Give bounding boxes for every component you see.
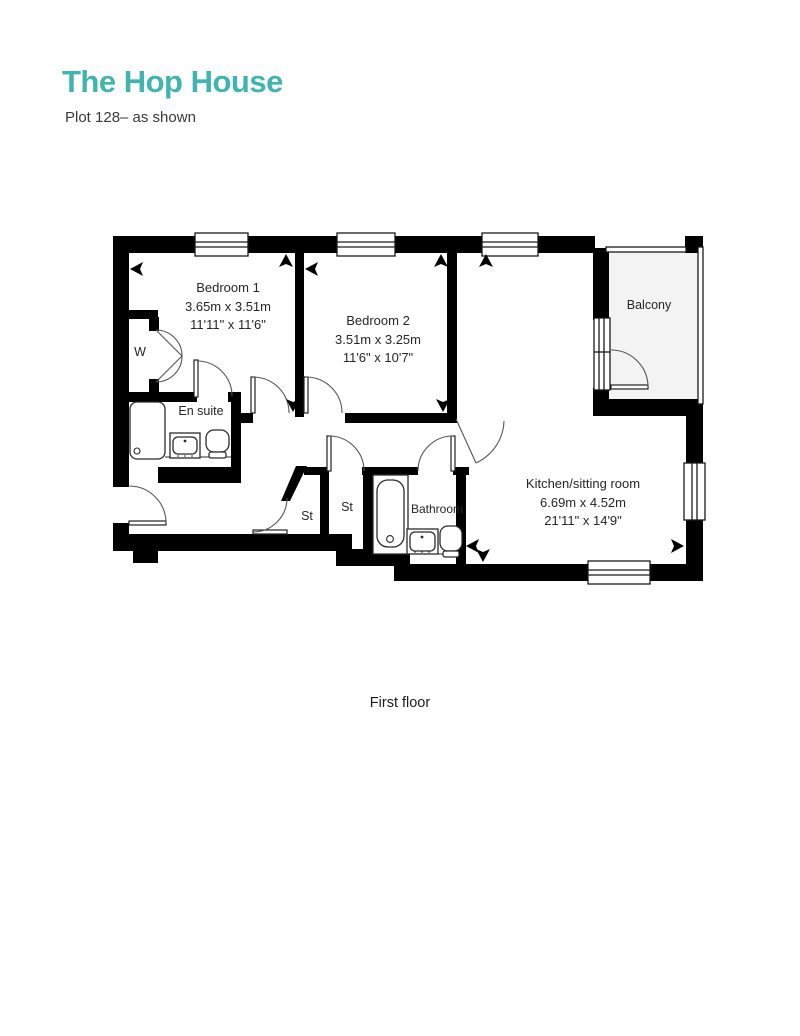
bathroom-door-leaf	[451, 436, 455, 471]
wardrobe-label: W	[128, 345, 152, 360]
kitchen-door-arc	[476, 421, 504, 463]
balcony-floor	[607, 251, 700, 401]
kitchen-door-leaf-line	[456, 419, 476, 463]
bathroom-sink-icon	[407, 529, 438, 554]
store1-door-arc	[253, 498, 287, 532]
arrow-bedroom1-left	[130, 262, 143, 276]
window-kitchen-top	[482, 233, 538, 256]
arrow-bedroom2-top	[434, 254, 448, 267]
kitchen-metric: 6.69m x 4.52m	[493, 494, 673, 513]
arrow-kitchen-right	[671, 539, 684, 553]
bedroom1-door-leaf	[251, 377, 255, 413]
store2-door-leaf	[327, 436, 331, 471]
balcony-door-leaf	[611, 385, 648, 389]
kitchen-label: Kitchen/sitting room 6.69m x 4.52m 21'11…	[493, 475, 673, 531]
bathroom-toilet-icon	[440, 526, 462, 557]
ensuite-door-arc	[197, 361, 232, 396]
ensuite-toilet-icon	[206, 430, 229, 458]
entrance-door-arc	[130, 486, 167, 523]
arrow-bedroom1-top	[279, 254, 293, 267]
bedroom2-door-leaf	[304, 377, 308, 413]
window-kitchen-bottom	[588, 561, 650, 584]
arrow-bedroom2-left	[305, 262, 318, 276]
bedroom2-imperial: 11'6" x 10'7"	[298, 349, 458, 368]
bedroom1-name: Bedroom 1	[148, 279, 308, 298]
store1-label: St	[295, 509, 319, 524]
window-kitchen-right	[684, 463, 705, 520]
floorplan-page: The Hop House Plot 128– as shown	[0, 0, 800, 1036]
ensuite-door-leaf	[194, 360, 198, 397]
window-bedroom2	[337, 233, 395, 256]
bedroom2-name: Bedroom 2	[298, 312, 458, 331]
kitchen-imperial: 21'11" x 14'9"	[493, 512, 673, 531]
store2-label: St	[335, 500, 359, 515]
store2-door-arc	[329, 436, 364, 471]
kitchen-name: Kitchen/sitting room	[493, 475, 673, 494]
bedroom1-metric: 3.65m x 3.51m	[148, 298, 308, 317]
balcony-label: Balcony	[599, 298, 699, 313]
window-bedroom1	[195, 233, 248, 256]
bedroom2-metric: 3.51m x 3.25m	[298, 331, 458, 350]
bedroom2-label: Bedroom 2 3.51m x 3.25m 11'6" x 10'7"	[298, 312, 458, 368]
bathroom-label: Bathroom	[392, 502, 482, 517]
bedroom1-label: Bedroom 1 3.65m x 3.51m 11'11" x 11'6"	[148, 279, 308, 335]
wardrobe-door-fold	[156, 330, 182, 382]
floor-caption: First floor	[300, 695, 500, 711]
ensuite-sink-icon	[170, 433, 200, 458]
bathroom-door-arc	[418, 436, 453, 471]
balcony-door-frame	[594, 318, 610, 390]
arrow-kitchen-bottom	[476, 549, 490, 562]
entrance-door-leaf	[129, 521, 166, 525]
ensuite-label: En suite	[178, 404, 224, 419]
bedroom1-door-arc	[253, 377, 289, 413]
bedroom2-door-arc	[306, 377, 342, 413]
floorplan-drawing	[0, 0, 800, 1036]
shower-icon	[130, 402, 165, 459]
bedroom1-imperial: 11'11" x 11'6"	[148, 316, 308, 335]
